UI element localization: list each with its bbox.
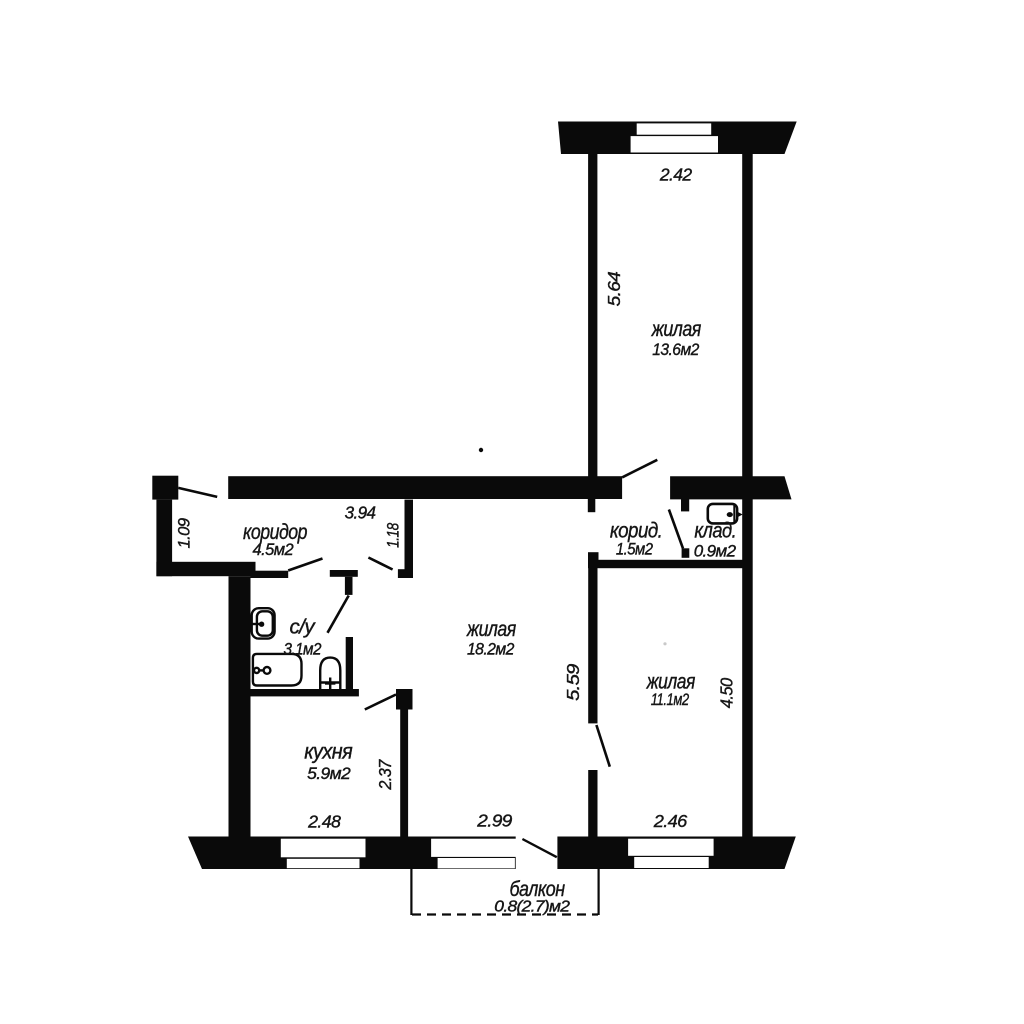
svg-text:2.48: 2.48 [307,812,341,832]
svg-text:3.1м2: 3.1м2 [283,640,322,659]
svg-text:0.8(2.7)м2: 0.8(2.7)м2 [494,899,570,916]
svg-text:18.2м2: 18.2м2 [467,640,515,659]
svg-text:3.94: 3.94 [345,502,376,522]
svg-text:1.5м2: 1.5м2 [616,540,654,559]
svg-text:1.18: 1.18 [385,522,403,548]
svg-text:2.37: 2.37 [375,758,395,790]
svg-text:0.9м2: 0.9м2 [694,542,737,561]
svg-text:13.6м2: 13.6м2 [652,340,700,359]
svg-text:1.09: 1.09 [175,517,194,548]
svg-text:5.64: 5.64 [604,272,624,306]
svg-text:11.1м2: 11.1м2 [651,690,690,709]
svg-text:балкон: балкон [509,877,565,901]
svg-text:2.46: 2.46 [653,811,688,831]
svg-text:5.59: 5.59 [563,663,583,701]
svg-text:с/у: с/у [290,616,317,639]
svg-text:4.50: 4.50 [717,677,737,708]
svg-text:2.99: 2.99 [476,811,513,831]
svg-text:2.42: 2.42 [659,165,693,185]
svg-text:жилая: жилая [466,617,517,641]
svg-text:5.9м2: 5.9м2 [307,764,351,783]
svg-text:кухня: кухня [304,739,353,763]
svg-text:жилая: жилая [651,317,702,341]
svg-text:4.5м2: 4.5м2 [253,540,295,559]
svg-text:клад.: клад. [694,519,736,543]
